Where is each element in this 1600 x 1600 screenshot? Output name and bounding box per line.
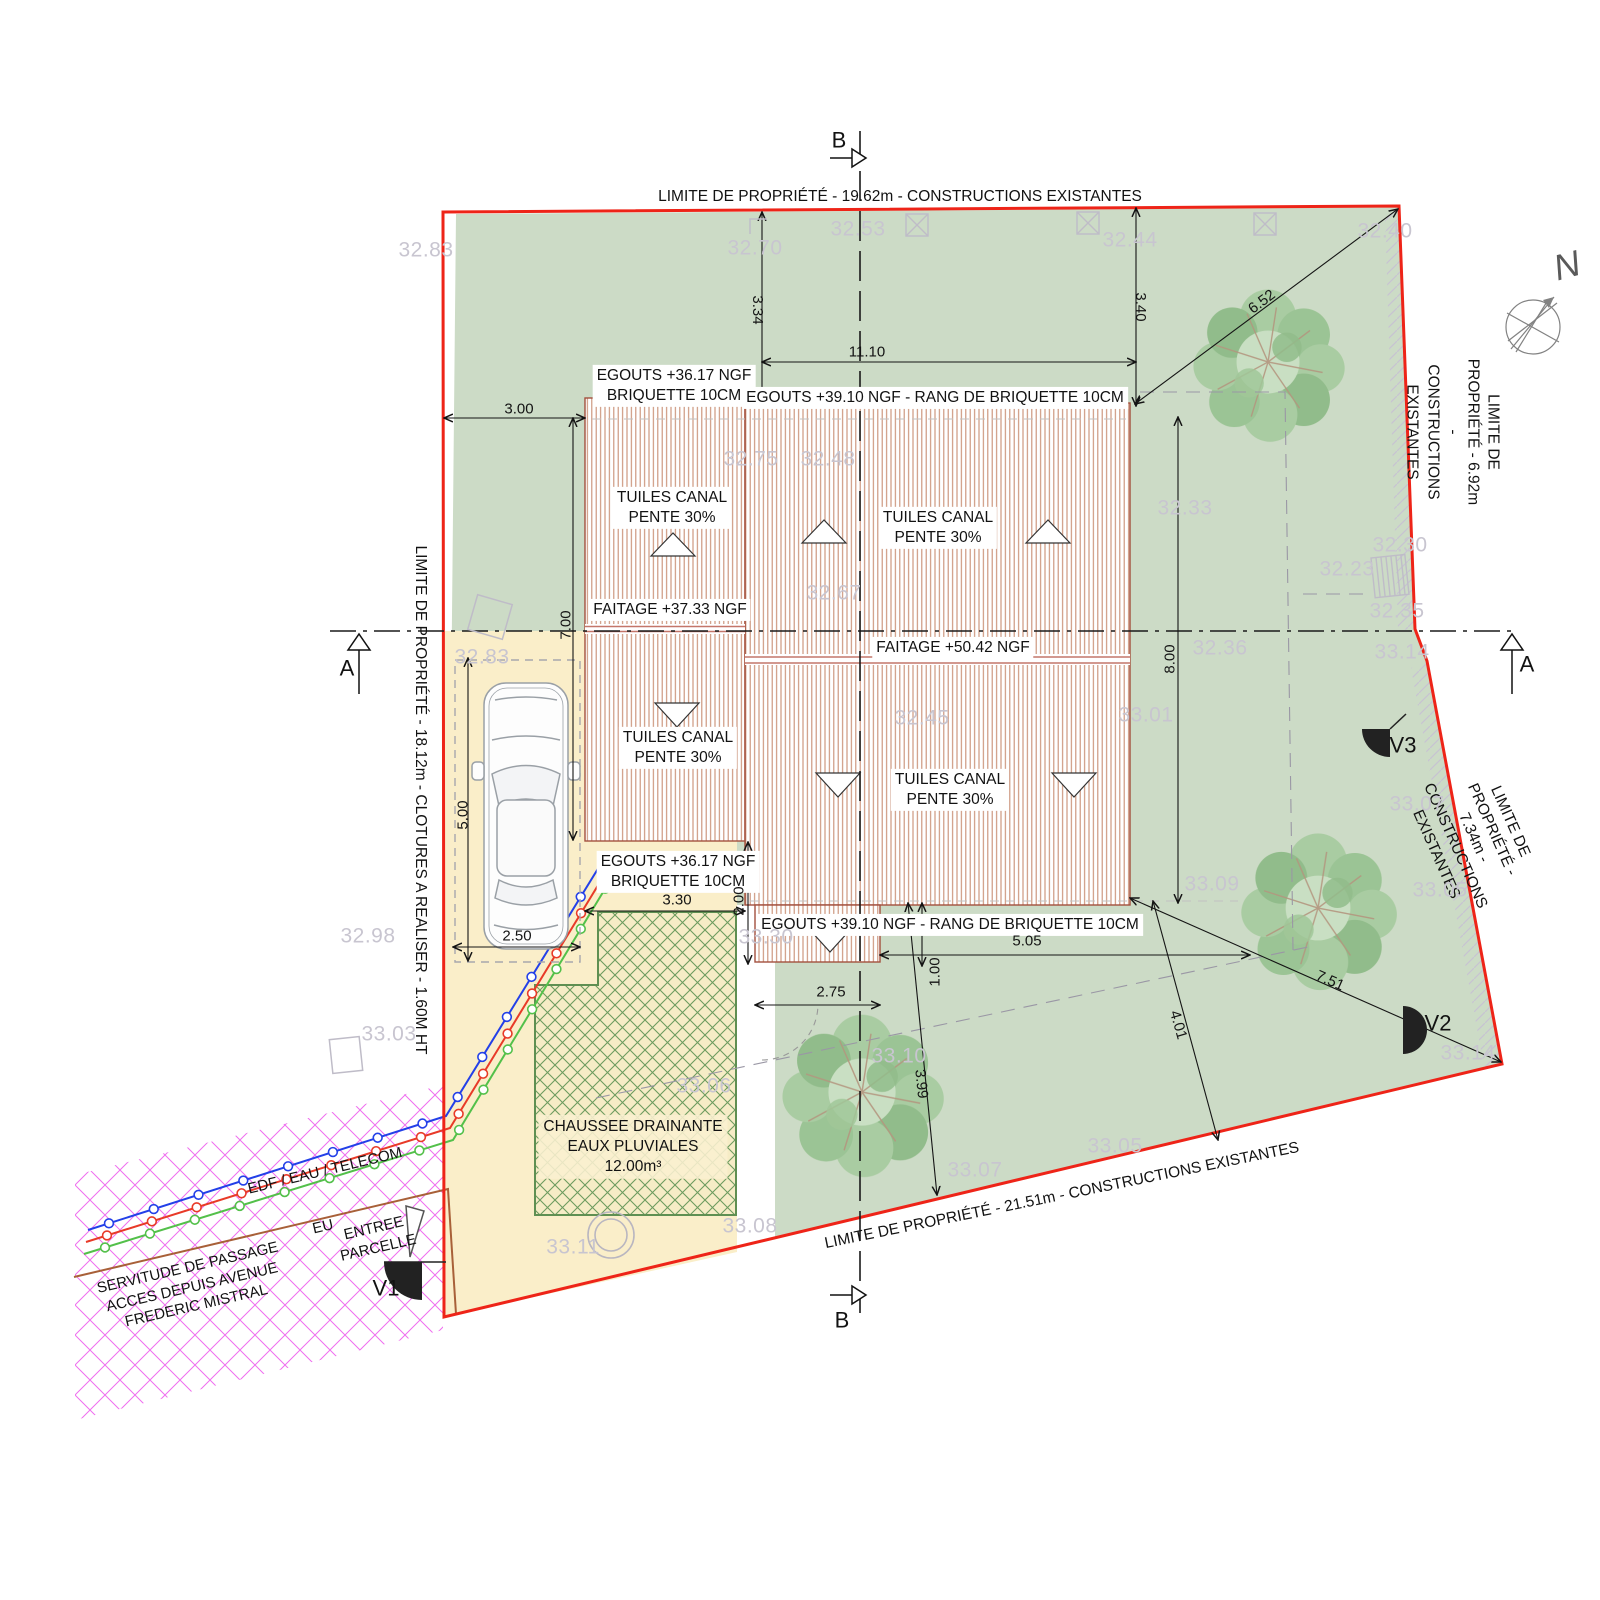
north-compass-icon — [1506, 297, 1560, 354]
car — [472, 683, 580, 949]
site-plan: LIMITE DE PROPRIÉTÉ - 19.62m - CONSTRUCT… — [0, 0, 1600, 1600]
site-plan-drawing — [0, 0, 1600, 1600]
